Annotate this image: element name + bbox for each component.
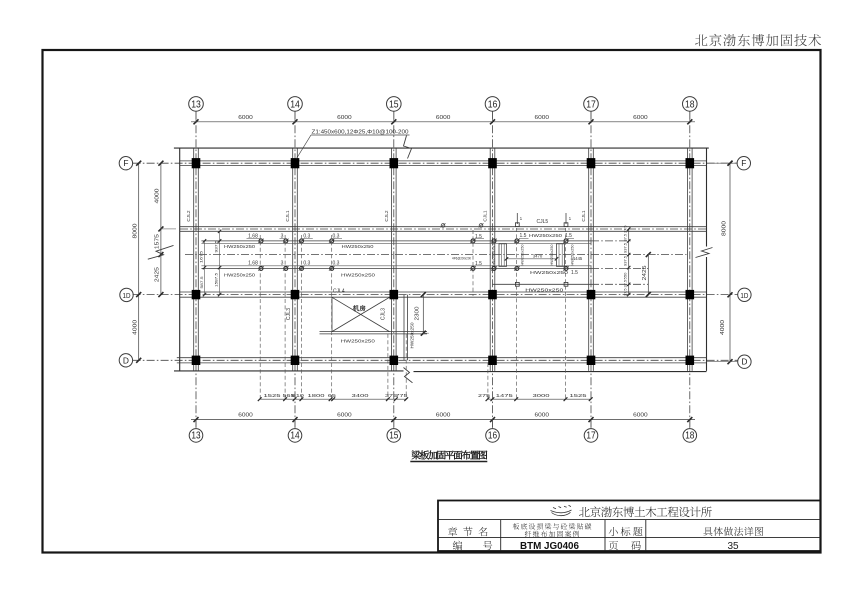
svg-text:17: 17 <box>586 99 596 110</box>
svg-text:8000: 8000 <box>132 223 138 238</box>
svg-text:HW250x250: HW250x250 <box>571 245 575 266</box>
svg-text:1675: 1675 <box>198 250 203 263</box>
svg-text:775: 775 <box>396 393 409 398</box>
svg-text:2425: 2425 <box>154 267 160 282</box>
svg-text:3: 3 <box>281 260 284 266</box>
svg-text:HW250x250: HW250x250 <box>492 245 496 266</box>
svg-text:4Φ6@200x200: 4Φ6@200x200 <box>452 256 471 260</box>
svg-text:37.5 37.5: 37.5 37.5 <box>623 226 627 242</box>
svg-text:1.5: 1.5 <box>571 270 578 276</box>
svg-text:1.5: 1.5 <box>565 233 572 239</box>
svg-text:37.5 37.5: 37.5 37.5 <box>623 280 627 296</box>
svg-text:CJL2: CJL2 <box>186 210 192 222</box>
svg-text:1D: 1D <box>123 293 131 300</box>
svg-text:1.68: 1.68 <box>248 260 258 266</box>
svg-text:1.68: 1.68 <box>248 234 258 240</box>
svg-text:3: 3 <box>281 234 284 240</box>
svg-text:6000: 6000 <box>238 413 253 419</box>
svg-text:CJL4: CJL4 <box>333 288 345 294</box>
svg-text:587.5: 587.5 <box>199 276 204 289</box>
svg-text:550: 550 <box>623 273 627 280</box>
svg-text:BTM JG0406: BTM JG0406 <box>520 541 579 552</box>
svg-text:0.3: 0.3 <box>303 234 310 240</box>
svg-text:16: 16 <box>488 431 498 442</box>
svg-text:CJL1: CJL1 <box>581 210 587 222</box>
svg-text:HW250x250: HW250x250 <box>530 270 568 276</box>
svg-text:13: 13 <box>191 99 201 110</box>
svg-text:6000: 6000 <box>535 115 550 121</box>
svg-text:3470: 3470 <box>533 253 543 258</box>
svg-text:CJL2: CJL2 <box>384 210 390 222</box>
svg-text:16: 16 <box>488 99 498 110</box>
svg-text:Z1:450x600,12Φ25,Φ10@100-200: Z1:450x600,12Φ25,Φ10@100-200 <box>312 129 409 135</box>
svg-text:18: 18 <box>685 431 695 442</box>
svg-text:0.3: 0.3 <box>333 234 340 240</box>
svg-text:CJL3: CJL3 <box>381 308 387 320</box>
svg-text:HW250x250: HW250x250 <box>342 244 374 250</box>
svg-text:CJL1: CJL1 <box>285 210 291 222</box>
svg-text:HW250x250: HW250x250 <box>525 288 563 294</box>
svg-text:0.3: 0.3 <box>303 260 310 266</box>
svg-text:3000: 3000 <box>533 393 551 398</box>
svg-text:6000: 6000 <box>337 413 352 419</box>
svg-text:65: 65 <box>328 393 337 398</box>
svg-text:275: 275 <box>478 393 491 398</box>
svg-text:1.5: 1.5 <box>475 234 482 240</box>
svg-text:1475: 1475 <box>496 393 514 398</box>
svg-text:610: 610 <box>292 393 305 398</box>
svg-text:HW250x250: HW250x250 <box>224 272 255 278</box>
svg-text:1.5: 1.5 <box>475 261 482 267</box>
svg-text:D: D <box>123 355 129 365</box>
svg-text:CJL5: CJL5 <box>537 219 549 225</box>
svg-text:1D: 1D <box>740 293 748 300</box>
svg-text:14: 14 <box>290 431 300 442</box>
svg-text:F: F <box>123 158 128 168</box>
svg-text:15: 15 <box>389 431 399 442</box>
svg-text:6000: 6000 <box>633 413 648 419</box>
svg-text:CJL1: CJL1 <box>482 210 488 222</box>
svg-text:HW250x250: HW250x250 <box>341 272 375 278</box>
svg-text:4000: 4000 <box>154 188 160 203</box>
svg-text:6000: 6000 <box>238 115 253 121</box>
svg-text:6000: 6000 <box>436 115 451 121</box>
svg-text:1587.5: 1587.5 <box>213 272 218 287</box>
svg-text:D: D <box>741 357 747 367</box>
svg-text:35: 35 <box>727 541 739 552</box>
svg-text:8000: 8000 <box>722 221 728 236</box>
svg-text:2425: 2425 <box>642 265 648 280</box>
svg-text:6000: 6000 <box>633 115 648 121</box>
svg-text:2300: 2300 <box>415 306 421 320</box>
svg-text:937.5: 937.5 <box>623 256 627 266</box>
svg-text:3400: 3400 <box>352 393 370 398</box>
svg-text:1525: 1525 <box>264 393 282 398</box>
svg-text:15: 15 <box>389 99 399 110</box>
svg-text:1800: 1800 <box>308 393 326 398</box>
svg-text:1525: 1525 <box>570 393 588 398</box>
svg-text:4000: 4000 <box>132 320 138 335</box>
svg-text:13: 13 <box>191 431 201 442</box>
svg-text:14: 14 <box>290 99 300 110</box>
svg-text:18: 18 <box>685 99 695 110</box>
svg-text:937.5: 937.5 <box>213 240 218 253</box>
svg-text:937.5: 937.5 <box>623 243 627 253</box>
svg-text:HW250x250: HW250x250 <box>341 338 375 344</box>
svg-text:1575: 1575 <box>154 234 160 249</box>
svg-text:HW250x250: HW250x250 <box>550 245 554 266</box>
svg-text:6000: 6000 <box>535 413 550 419</box>
svg-text:HW250x250: HW250x250 <box>529 233 562 239</box>
svg-text:1.5: 1.5 <box>520 233 527 239</box>
svg-text:F: F <box>741 158 746 168</box>
svg-text:6000: 6000 <box>436 413 451 419</box>
svg-text:CJL3: CJL3 <box>286 308 292 320</box>
svg-text:HW250x250: HW250x250 <box>224 244 255 250</box>
svg-text:HW250x250: HW250x250 <box>410 322 415 348</box>
svg-text:0.3: 0.3 <box>333 260 340 266</box>
svg-text:6000: 6000 <box>337 115 352 121</box>
svg-text:17: 17 <box>586 431 595 442</box>
svg-text:4000: 4000 <box>720 320 726 335</box>
svg-text:HW250x250: HW250x250 <box>521 245 525 266</box>
